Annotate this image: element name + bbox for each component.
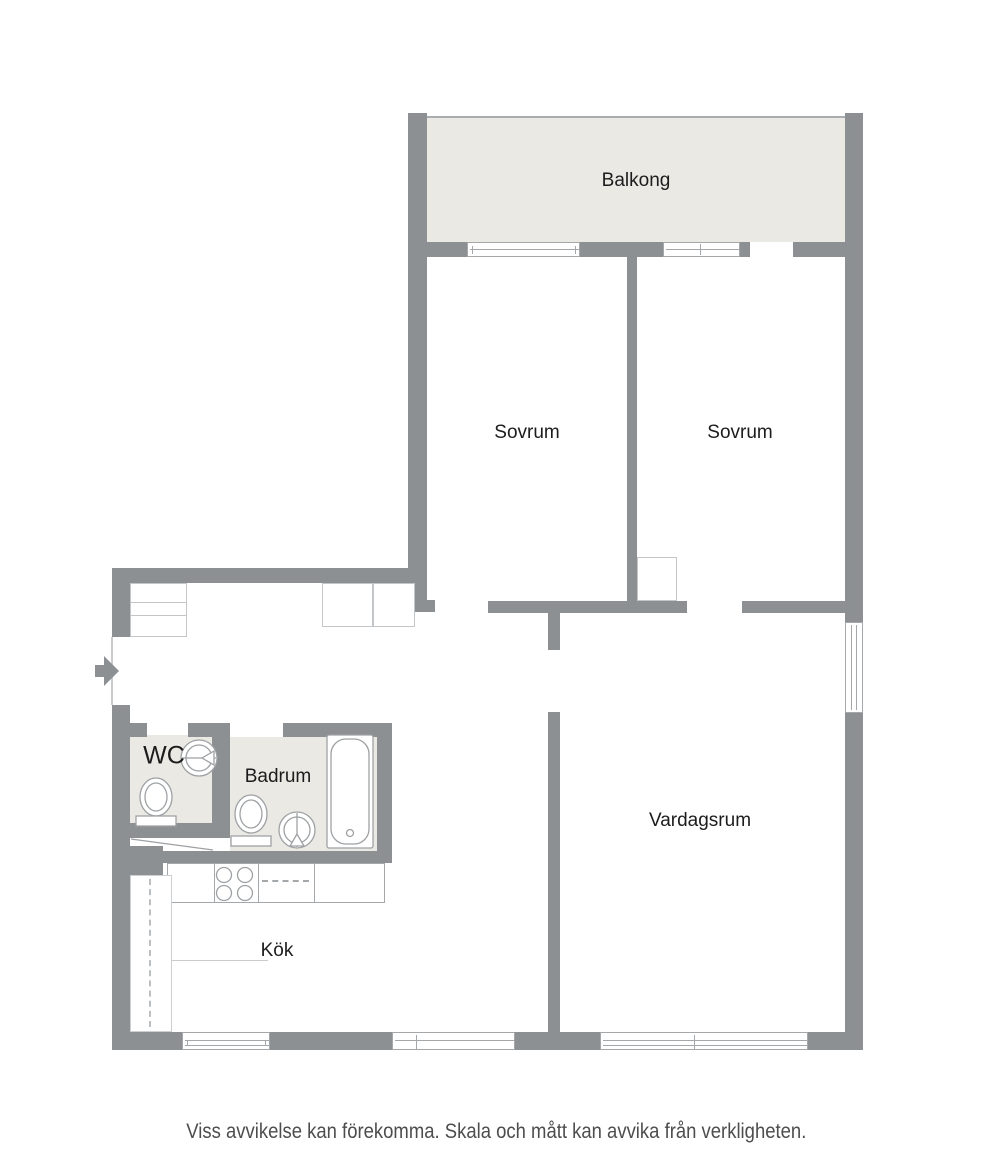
balcony-railing <box>427 116 845 118</box>
wall <box>112 823 230 838</box>
wall <box>845 113 863 622</box>
room-label-bedroom-right: Sovrum <box>707 422 772 444</box>
room-label-kitchen: Kök <box>261 940 294 962</box>
wall <box>377 723 392 852</box>
wall <box>580 242 663 257</box>
wall <box>137 851 392 863</box>
wall <box>130 723 147 737</box>
closet-icon <box>322 583 373 627</box>
wall <box>283 723 392 737</box>
room-label-bathroom: Badrum <box>245 766 312 788</box>
floor-plan-page: Balkong Sovrum Sovrum WC Badrum Vardagsr… <box>0 0 992 1171</box>
counter-edge-line <box>172 960 268 961</box>
room-label-living-room: Vardagsrum <box>649 810 751 832</box>
wall <box>112 705 130 1050</box>
wall <box>793 242 845 257</box>
wall <box>742 601 845 613</box>
window-icon <box>467 242 580 257</box>
kitchen-counter <box>167 863 385 903</box>
wall <box>808 1032 863 1050</box>
tall-cabinet-icon <box>130 875 172 1032</box>
wall <box>112 568 408 583</box>
wall <box>548 712 560 1032</box>
window-icon <box>663 242 740 257</box>
disclaimer-text: Viss avvikelse kan förekomma. Skala och … <box>0 1120 992 1144</box>
wall <box>112 568 130 637</box>
entry-arrow-icon <box>95 656 119 686</box>
window-icon <box>600 1032 808 1050</box>
wall <box>270 1032 392 1050</box>
bathroom-floor <box>230 737 377 851</box>
entry-door-line <box>111 637 113 705</box>
wall <box>548 613 560 650</box>
wall <box>515 1032 600 1050</box>
room-label-balcony: Balkong <box>602 170 671 192</box>
wall <box>427 600 435 612</box>
closet-icon <box>130 583 187 637</box>
wall <box>845 713 863 1050</box>
wall <box>740 242 750 257</box>
cabinet-dash-line <box>149 879 151 1027</box>
dishwasher-icon <box>262 880 309 882</box>
room-label-wc: WC <box>143 742 185 771</box>
wall <box>408 113 427 612</box>
wall <box>212 723 230 838</box>
wall <box>427 242 467 257</box>
wall <box>130 846 163 875</box>
window-icon <box>392 1032 515 1050</box>
wall <box>627 257 637 601</box>
closet-icon <box>373 583 415 627</box>
wall <box>488 601 687 613</box>
wall <box>112 1032 182 1050</box>
window-icon <box>845 622 863 713</box>
room-label-bedroom-left: Sovrum <box>494 422 559 444</box>
window-icon <box>182 1032 270 1050</box>
closet-icon <box>637 557 677 601</box>
